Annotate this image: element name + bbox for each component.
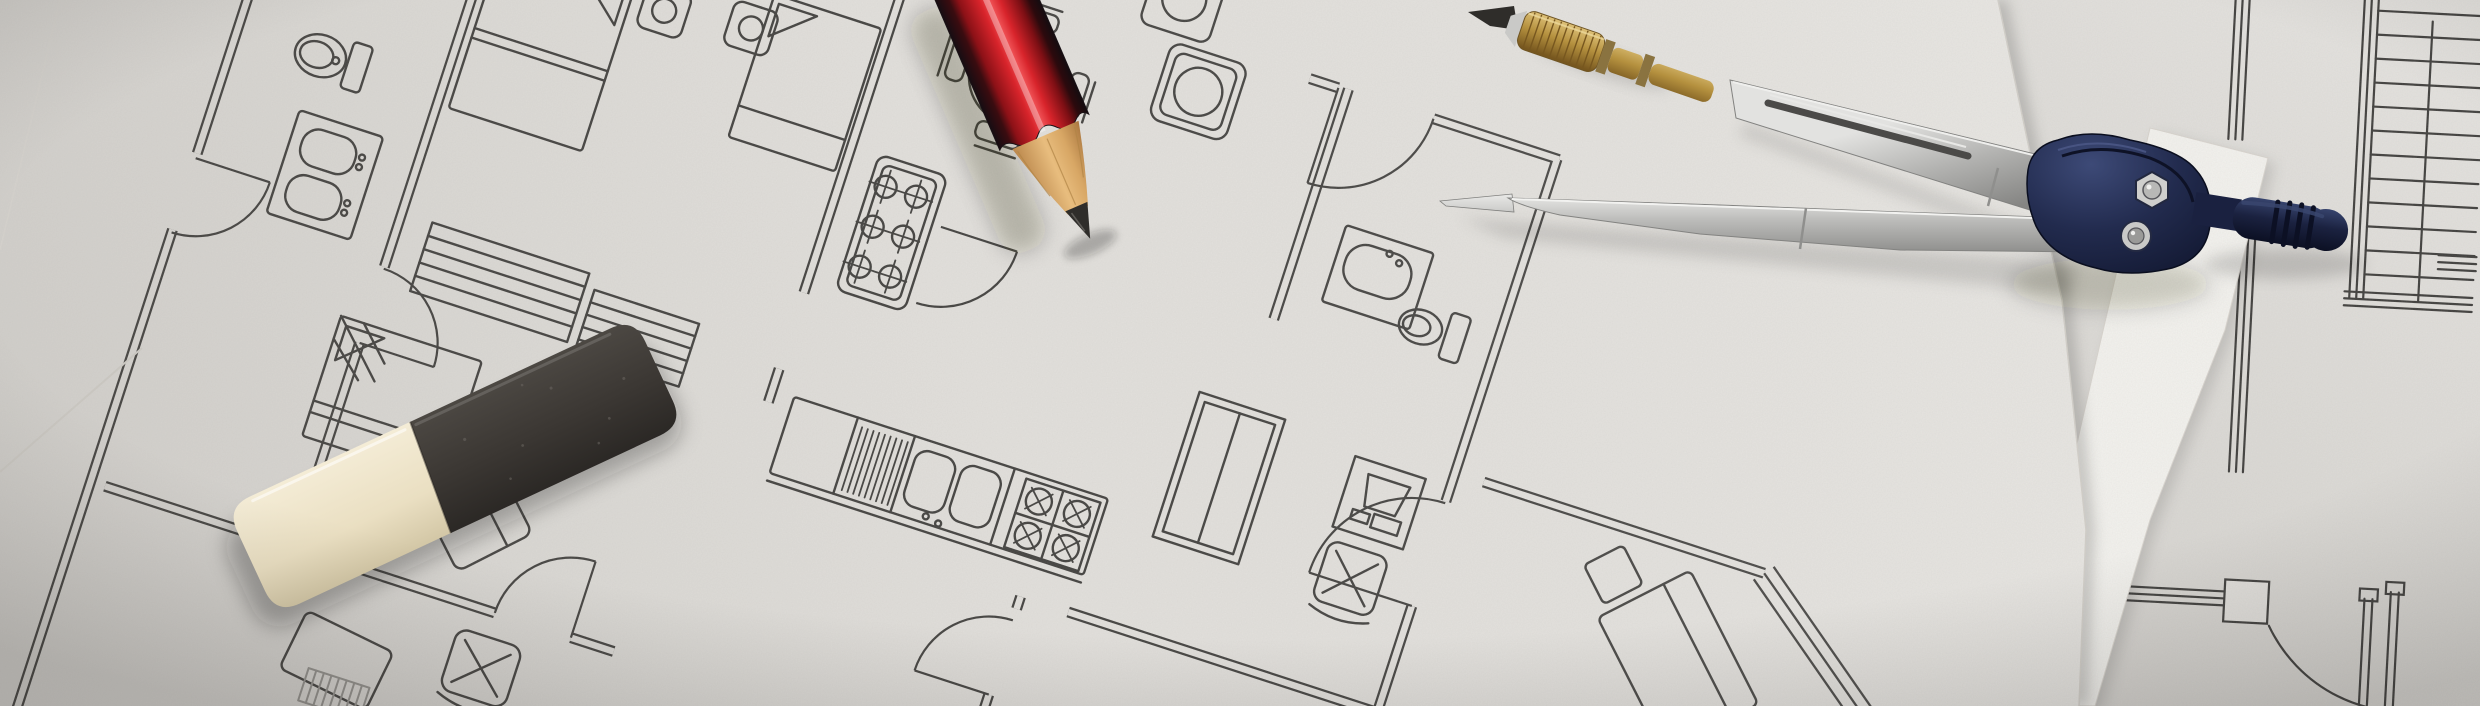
blueprint-photo-canvas: [0, 0, 2480, 706]
blueprint-photo: [0, 0, 2480, 706]
vignette: [0, 0, 2480, 706]
